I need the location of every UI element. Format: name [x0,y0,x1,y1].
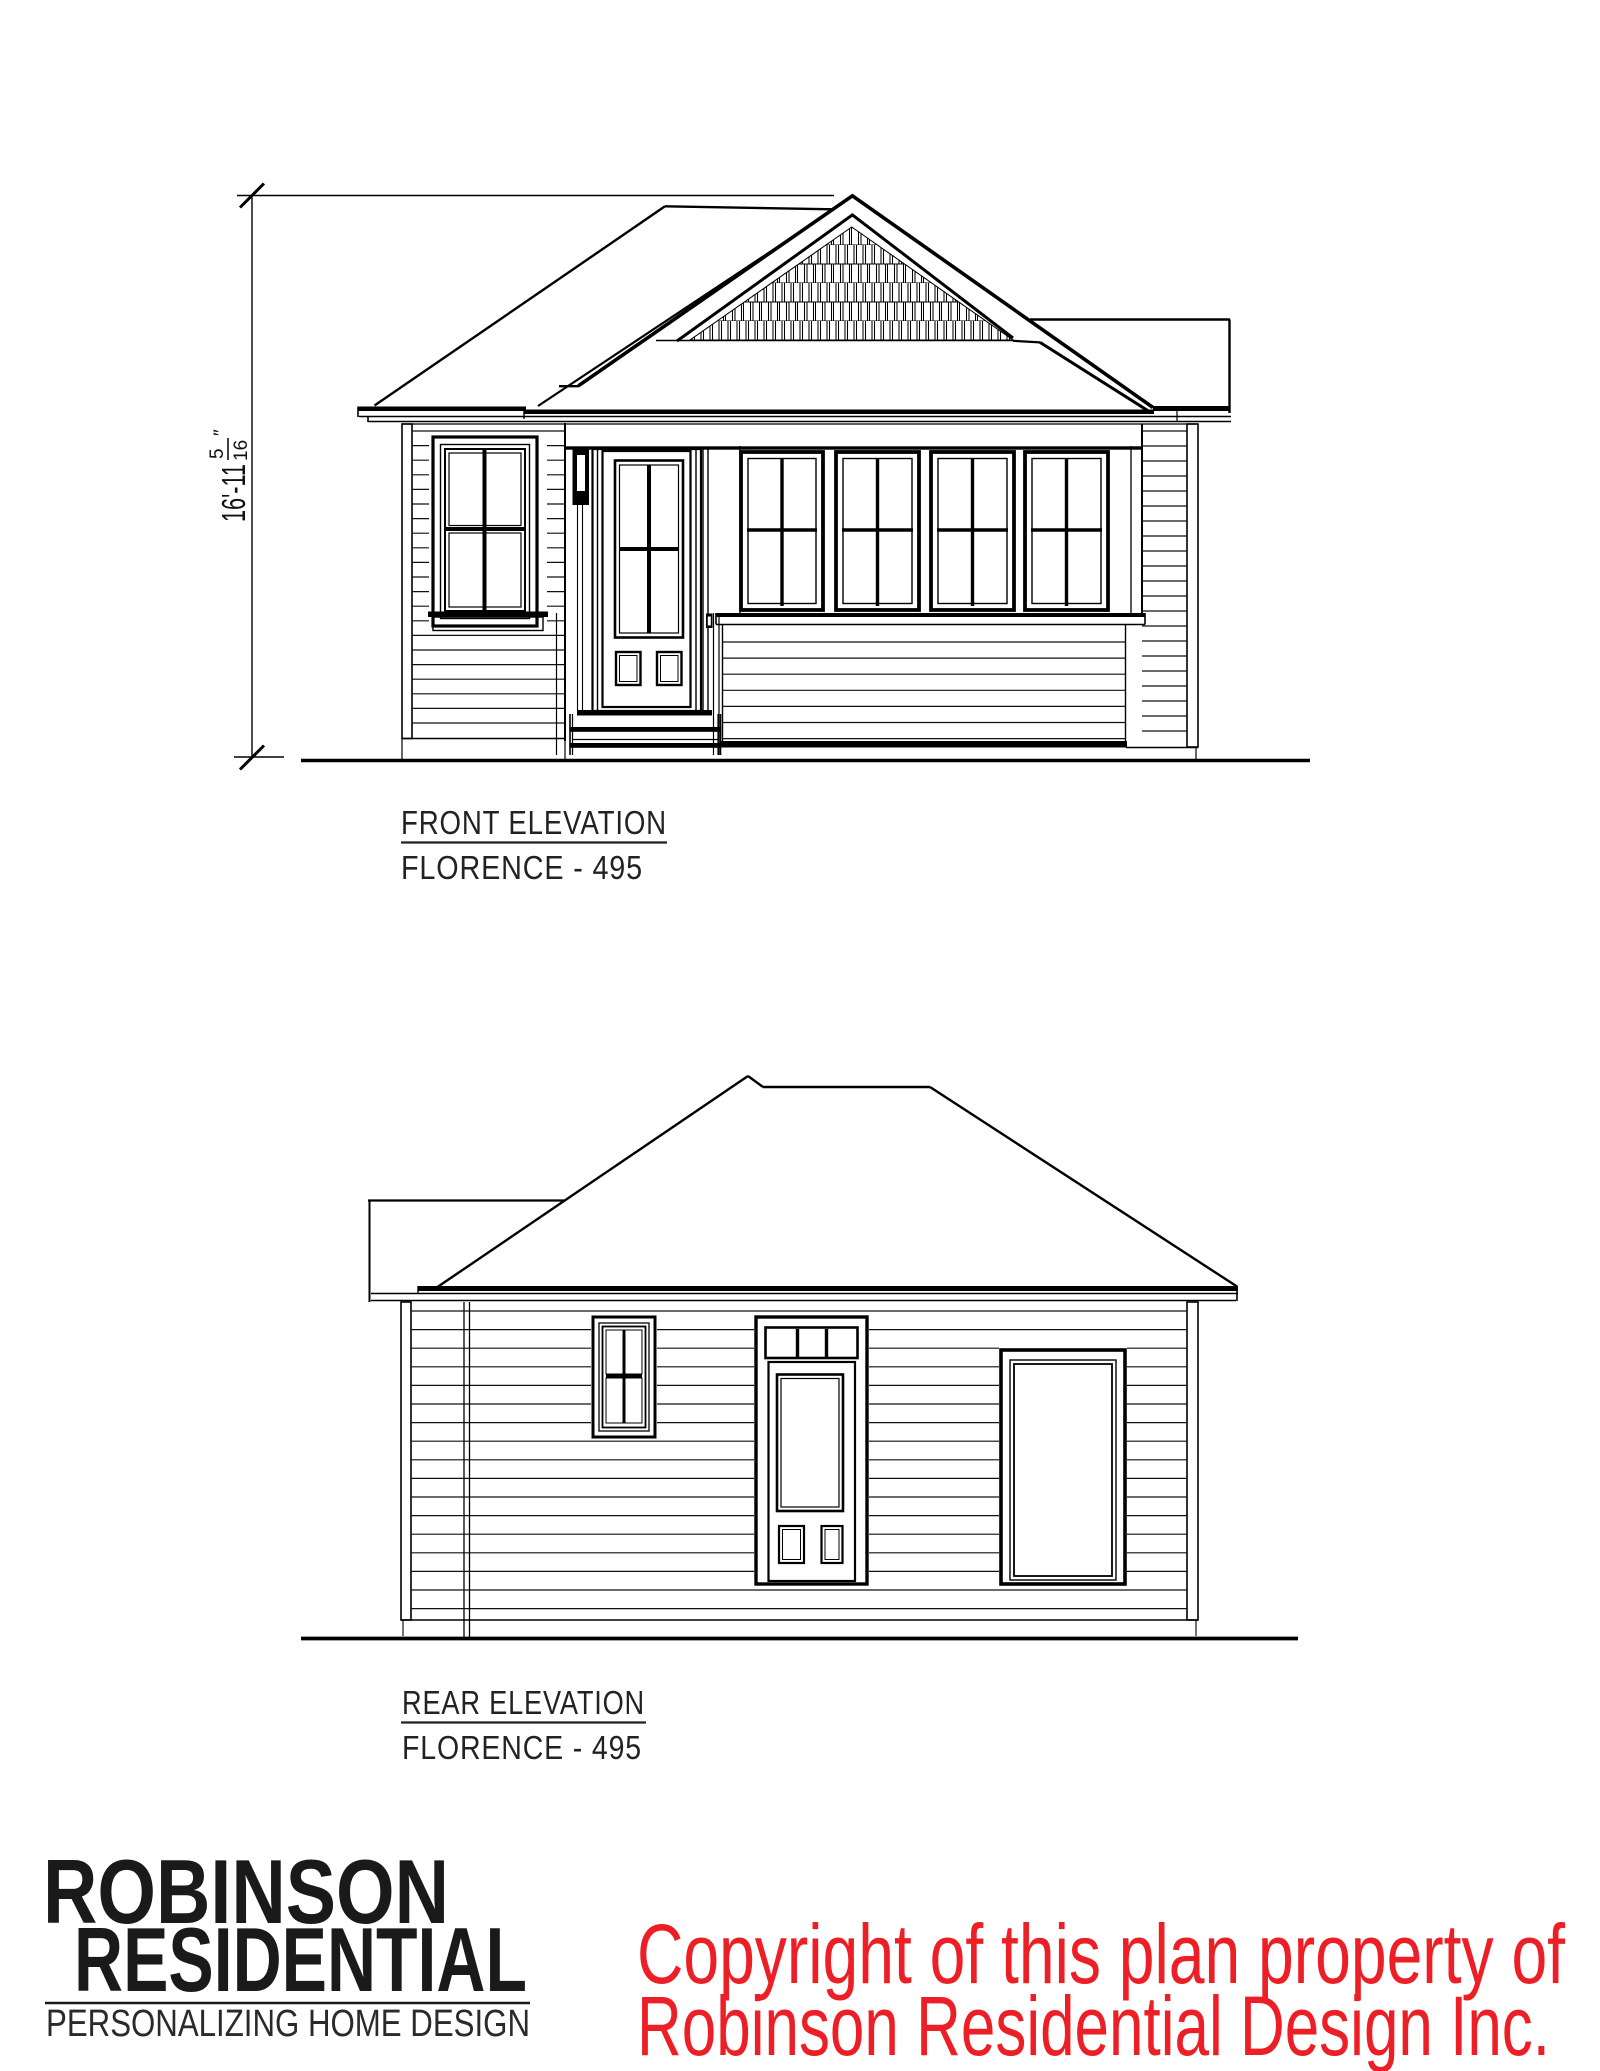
svg-text:RESIDENTIAL: RESIDENTIAL [74,1910,527,2011]
svg-text:FLORENCE - 495: FLORENCE - 495 [402,1730,642,1767]
svg-text:″: ″ [211,429,232,436]
svg-text:REAR ELEVATION: REAR ELEVATION [402,1685,645,1722]
svg-text:5: 5 [207,448,228,459]
svg-text:16: 16 [231,440,252,461]
svg-text:FRONT ELEVATION: FRONT ELEVATION [401,805,667,842]
svg-text:PERSONALIZING HOME DESIGN: PERSONALIZING HOME DESIGN [46,2003,530,2045]
svg-text:Robinson Residential Design In: Robinson Residential Design Inc. [637,1979,1550,2071]
svg-text:16'-11: 16'-11 [215,464,252,522]
svg-text:FLORENCE - 495: FLORENCE - 495 [401,850,643,887]
